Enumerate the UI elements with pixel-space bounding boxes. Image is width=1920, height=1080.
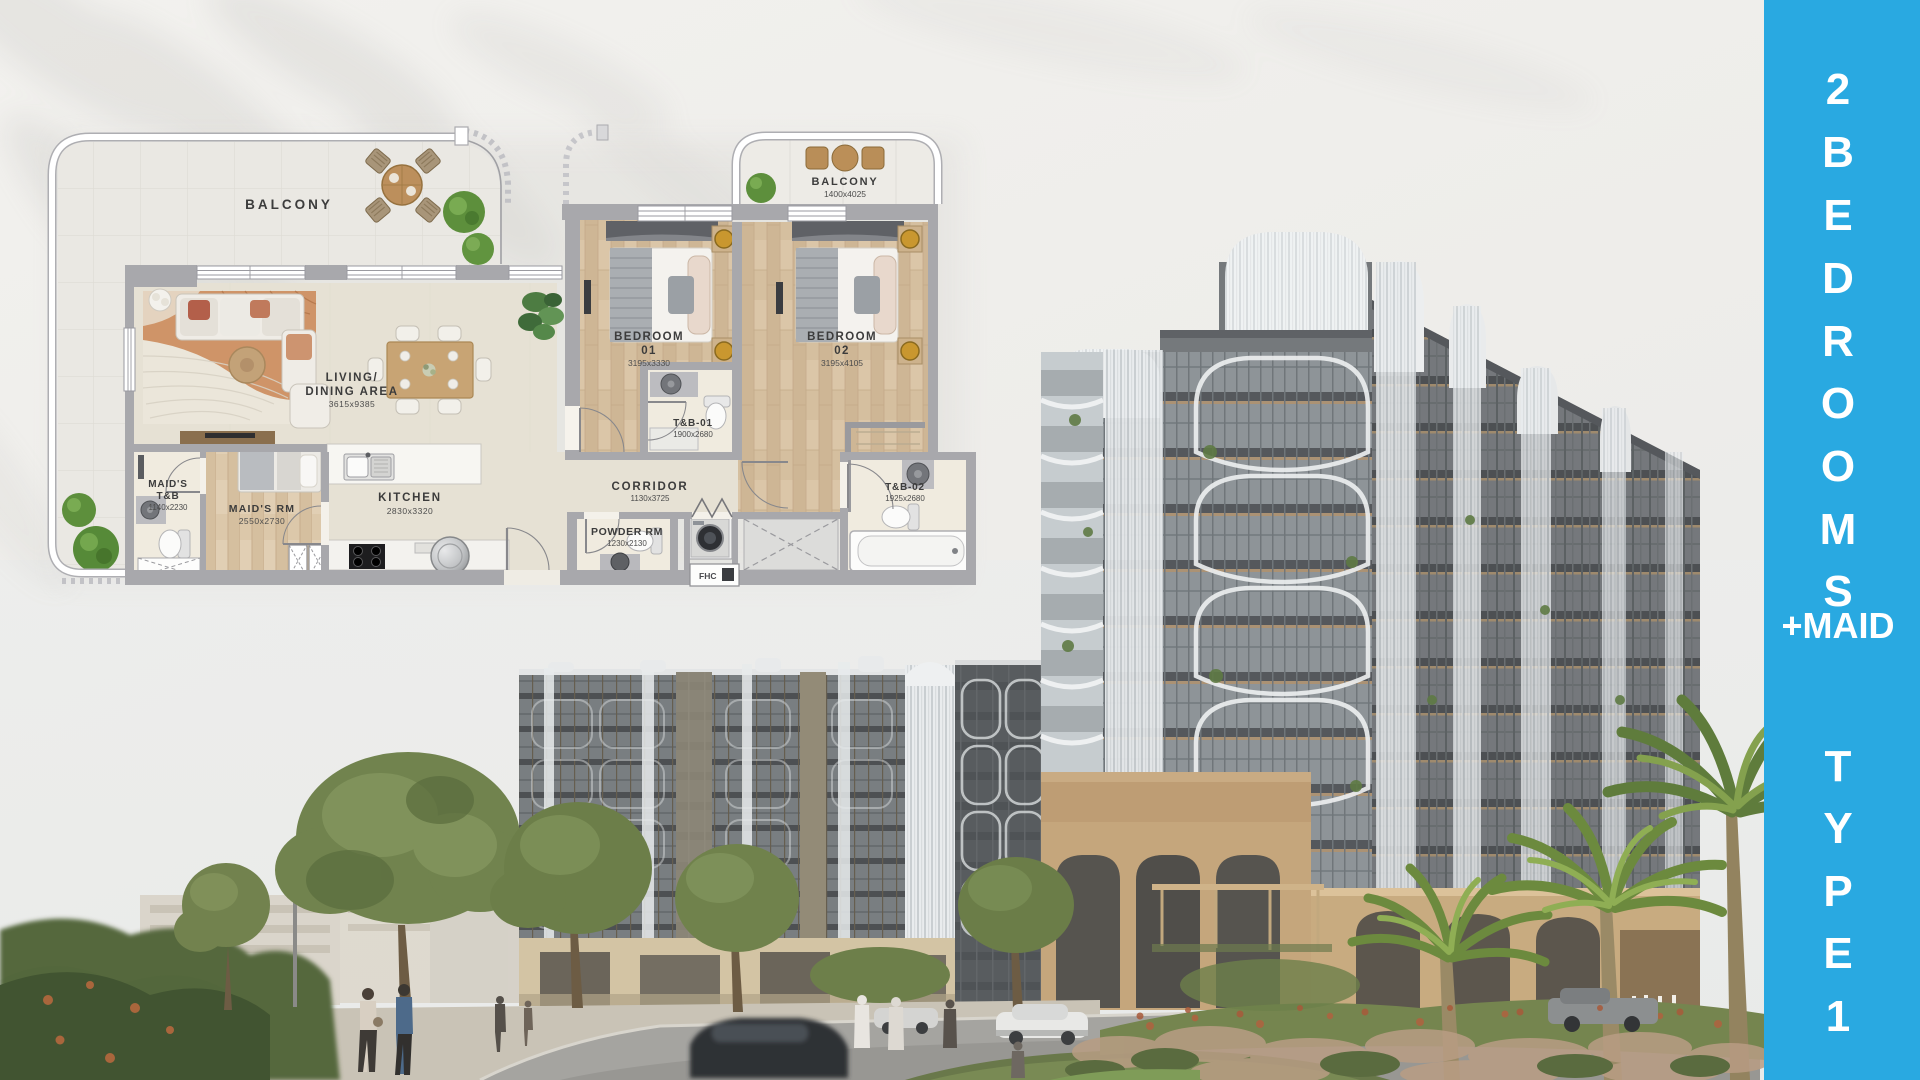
svg-text:MAID'S: MAID'S xyxy=(148,479,187,490)
svg-text:T&B-01: T&B-01 xyxy=(673,418,713,429)
svg-text:1900x2680: 1900x2680 xyxy=(673,430,713,439)
svg-text:KITCHEN: KITCHEN xyxy=(378,492,442,504)
svg-text:02: 02 xyxy=(834,345,850,357)
svg-text:LIVING/: LIVING/ xyxy=(326,372,379,384)
svg-text:2: 2 xyxy=(1826,65,1850,114)
svg-text:Y: Y xyxy=(1823,804,1852,853)
svg-text:+MAID: +MAID xyxy=(1781,605,1894,646)
svg-text:T&B-02: T&B-02 xyxy=(885,482,925,493)
svg-text:1925x2680: 1925x2680 xyxy=(885,494,925,503)
svg-text:O: O xyxy=(1821,442,1855,491)
svg-text:R: R xyxy=(1822,317,1854,366)
svg-text:E: E xyxy=(1823,191,1852,240)
svg-text:FHC: FHC xyxy=(699,571,716,581)
svg-text:T: T xyxy=(1825,742,1852,791)
svg-text:MAID'S RM: MAID'S RM xyxy=(229,503,295,515)
svg-text:P: P xyxy=(1823,867,1852,916)
svg-text:2550x2730: 2550x2730 xyxy=(239,516,286,526)
svg-text:BALCONY: BALCONY xyxy=(812,176,879,188)
svg-text:BEDROOM: BEDROOM xyxy=(614,331,684,343)
svg-text:3195x3330: 3195x3330 xyxy=(628,358,670,368)
svg-text:CORRIDOR: CORRIDOR xyxy=(611,481,688,493)
svg-text:1: 1 xyxy=(1826,992,1850,1041)
svg-text:D: D xyxy=(1822,254,1854,303)
svg-text:BALCONY: BALCONY xyxy=(245,197,333,212)
svg-text:3195x4105: 3195x4105 xyxy=(821,358,863,368)
svg-text:M: M xyxy=(1820,505,1857,554)
svg-text:1140x2230: 1140x2230 xyxy=(149,503,189,512)
svg-text:BEDROOM: BEDROOM xyxy=(807,331,877,343)
svg-text:1230x2130: 1230x2130 xyxy=(607,539,647,548)
svg-text:1400x4025: 1400x4025 xyxy=(824,189,866,199)
svg-text:O: O xyxy=(1821,379,1855,428)
svg-text:01: 01 xyxy=(641,345,657,357)
svg-text:3615x9385: 3615x9385 xyxy=(329,399,376,409)
svg-text:DINING AREA: DINING AREA xyxy=(305,386,398,398)
svg-text:1130x3725: 1130x3725 xyxy=(631,494,671,503)
svg-text:2830x3320: 2830x3320 xyxy=(387,506,434,516)
svg-text:E: E xyxy=(1823,929,1852,978)
svg-text:T&B: T&B xyxy=(157,491,180,502)
svg-text:POWDER RM: POWDER RM xyxy=(591,526,663,538)
svg-text:B: B xyxy=(1822,128,1854,177)
